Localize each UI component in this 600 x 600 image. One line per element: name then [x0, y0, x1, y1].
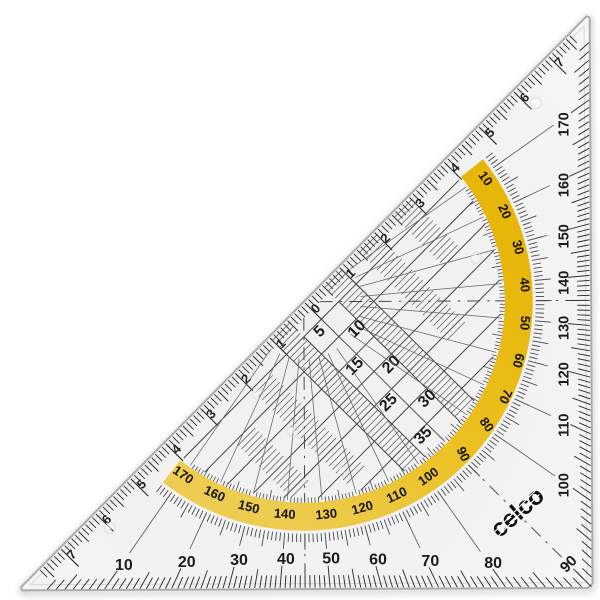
svg-text:150: 150 — [557, 224, 573, 248]
svg-text:30: 30 — [230, 552, 248, 569]
svg-text:60: 60 — [369, 551, 387, 568]
svg-text:130: 130 — [557, 316, 573, 340]
svg-text:100: 100 — [557, 473, 573, 497]
svg-text:120: 120 — [557, 362, 573, 386]
svg-text:50: 50 — [517, 315, 533, 331]
svg-text:160: 160 — [557, 173, 573, 197]
svg-text:40: 40 — [517, 277, 533, 293]
svg-text:10: 10 — [115, 557, 133, 574]
svg-text:140: 140 — [273, 505, 296, 522]
svg-text:170: 170 — [557, 112, 573, 136]
svg-text:50: 50 — [322, 551, 340, 568]
svg-text:110: 110 — [557, 414, 573, 437]
svg-text:140: 140 — [557, 271, 573, 295]
svg-text:130: 130 — [315, 506, 338, 523]
svg-text:80: 80 — [484, 555, 502, 572]
svg-text:20: 20 — [178, 554, 196, 571]
svg-text:40: 40 — [277, 551, 295, 568]
svg-text:70: 70 — [421, 553, 439, 570]
